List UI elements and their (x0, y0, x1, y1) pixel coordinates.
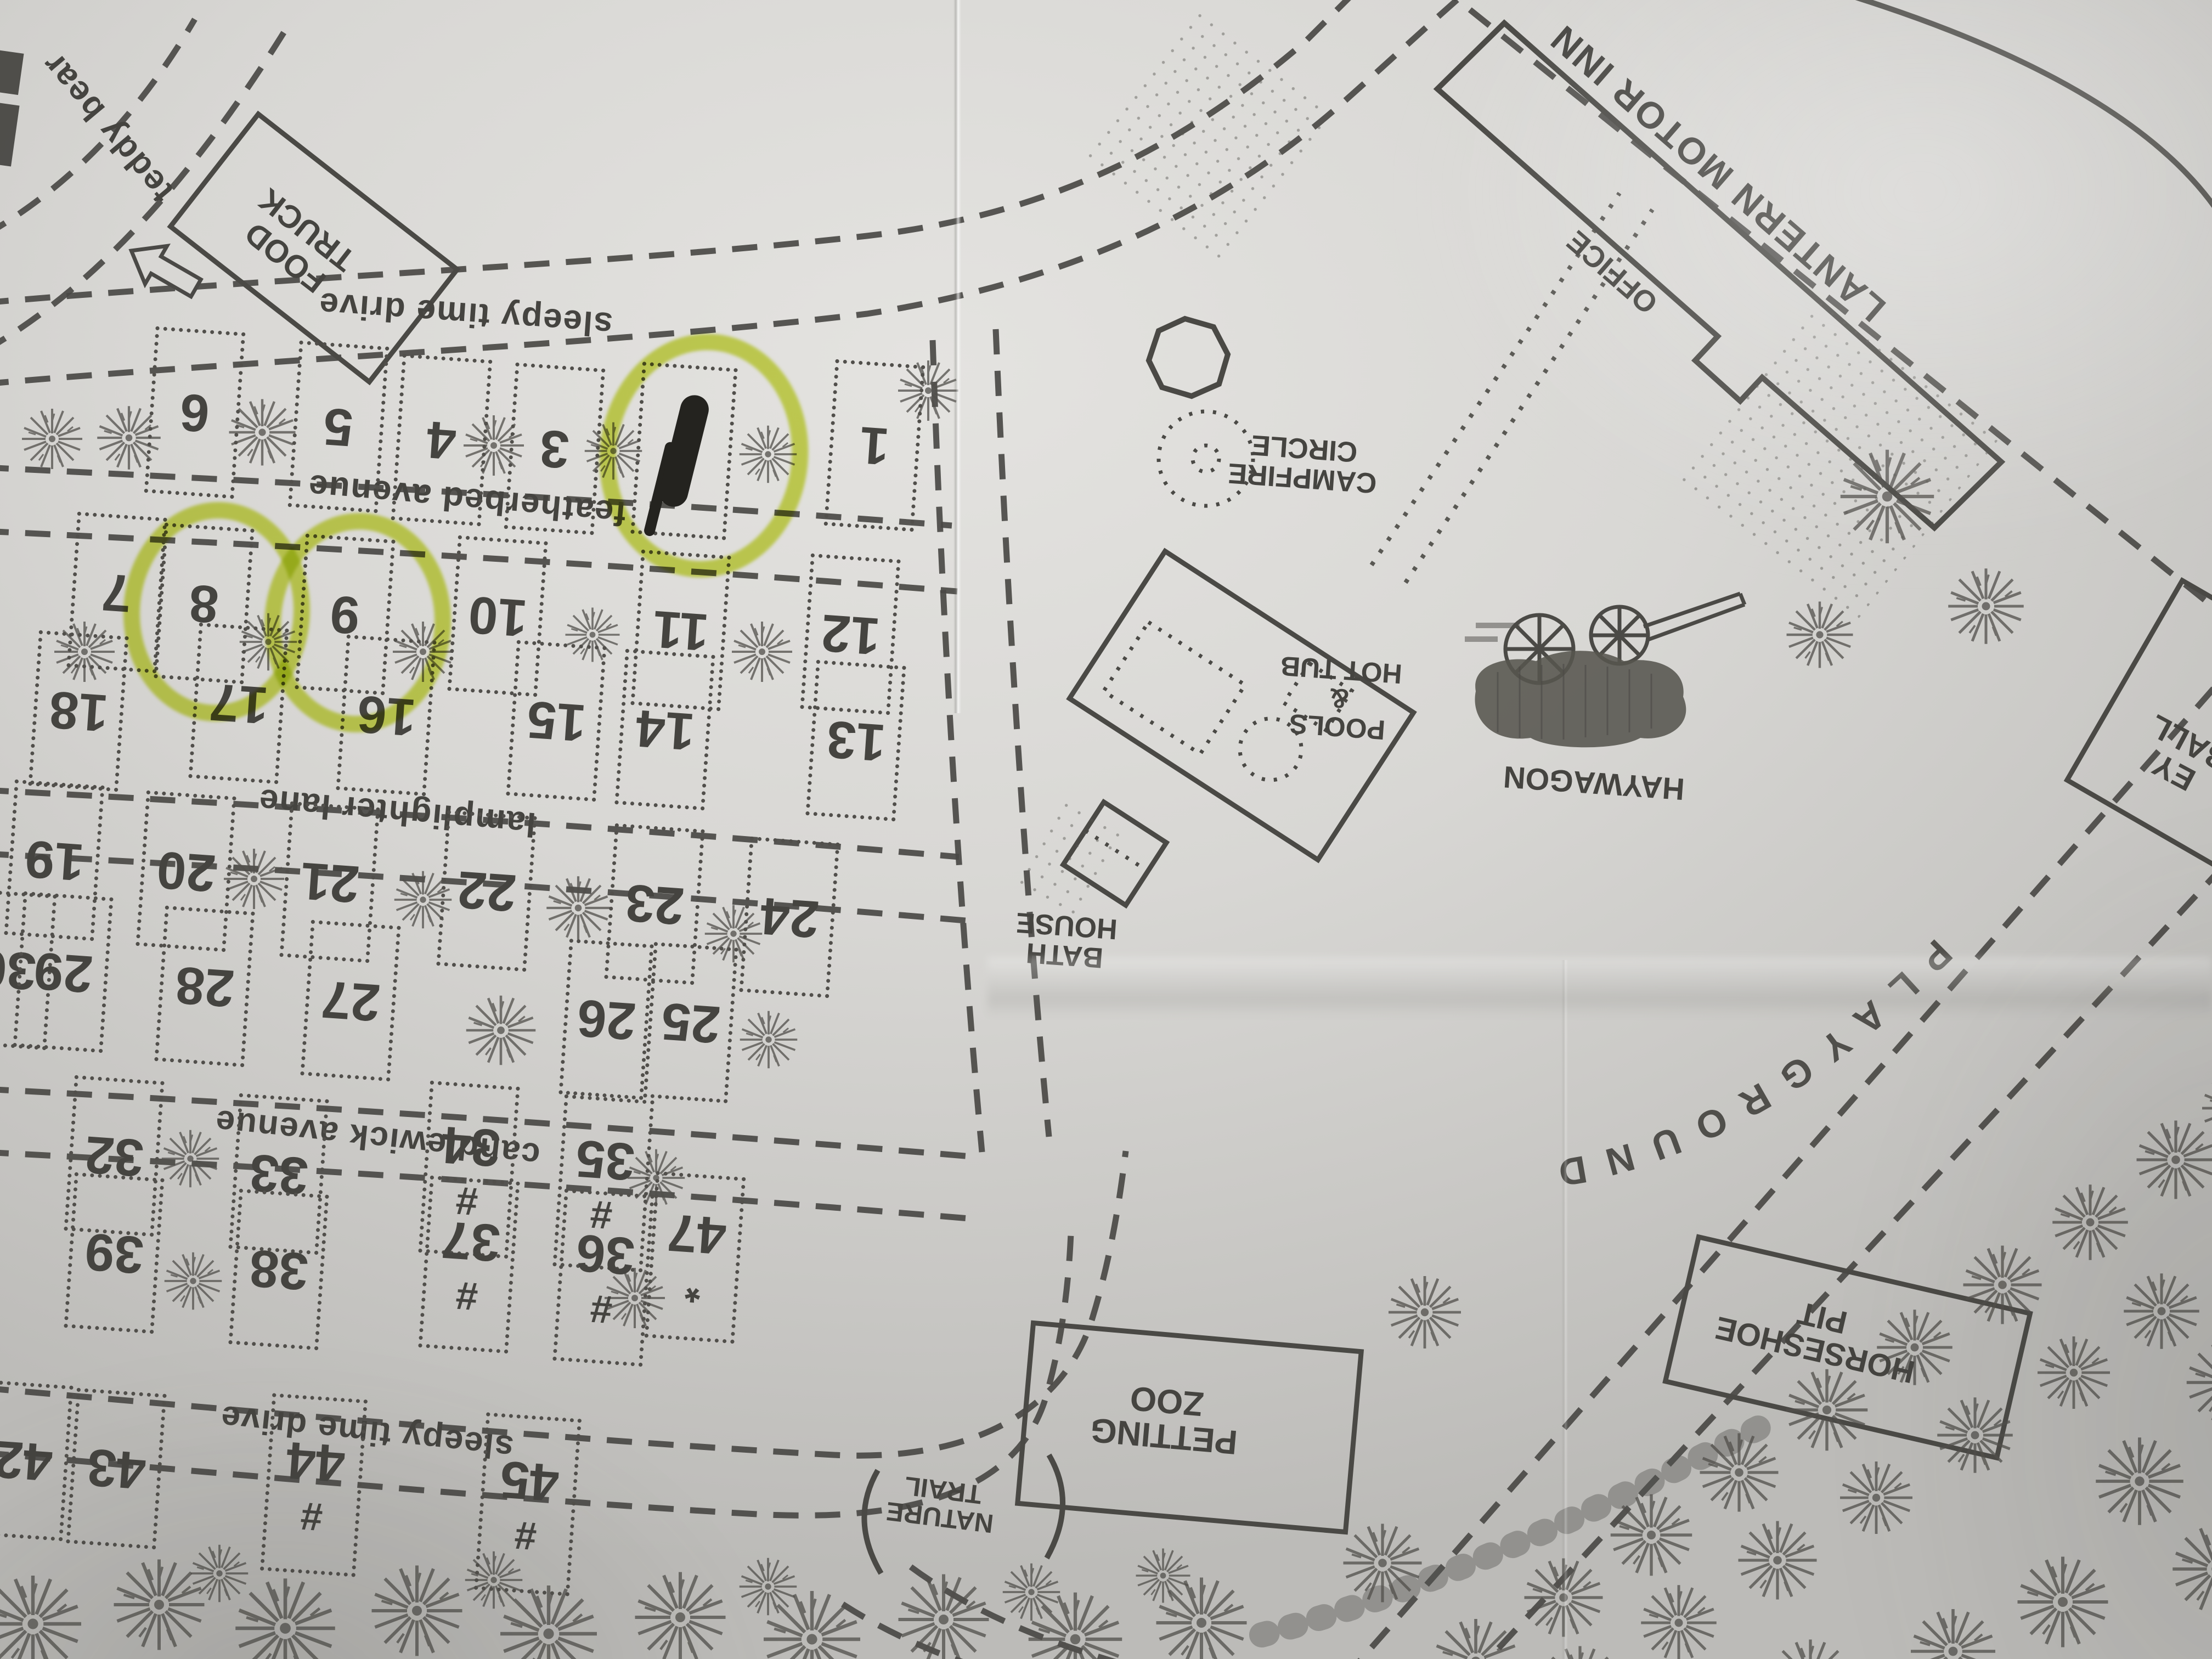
site-number-35: 35 (574, 1128, 636, 1192)
campsite-14: 14 (614, 649, 715, 811)
road-corner-top-right (1810, 0, 2212, 236)
site-number-29: 29 (32, 940, 94, 1004)
campsite-28: 28 (154, 906, 255, 1068)
campsite-4: 4 (391, 354, 493, 527)
campsite-26: 26 (558, 939, 653, 1100)
campsite-1: 1 (824, 359, 926, 532)
campsite-3: 3 (504, 363, 606, 535)
campfire-circle-inner (1193, 445, 1219, 472)
site-number-13: 13 (825, 708, 887, 772)
campfire-circle-label: CAMPFIRE CIRCLE (1227, 428, 1380, 498)
site-number-27: 27 (319, 968, 382, 1032)
site-number-1: 1 (858, 414, 891, 476)
svg-text:PLAYGROUND: PLAYGROUND (1536, 932, 1961, 1198)
campsite-6: 6 (144, 326, 246, 499)
hash-marker: # (513, 1513, 538, 1559)
site-number-3: 3 (538, 417, 572, 479)
site-number-28: 28 (173, 954, 236, 1018)
campsite-13: 13 (805, 660, 906, 822)
campsite-5: 5 (288, 341, 390, 513)
campground-map-photo: .road{fill:none;stroke:#4a4945;stroke-wi… (0, 0, 2212, 1659)
asterisk-marker: * (684, 1266, 702, 1312)
site-number-19: 19 (23, 828, 86, 892)
edge-cut-building-a (0, 49, 24, 95)
campsite-15: 15 (506, 640, 606, 802)
road-diagonal-2 (1470, 856, 2212, 1659)
haywagon-illustration (1465, 594, 1745, 747)
site-number-42: 42 (0, 1428, 54, 1492)
road-loop-right-1 (933, 340, 982, 1152)
site-number-6: 6 (178, 381, 212, 443)
site-number-37: 37 (439, 1209, 502, 1273)
nature-trail-arc-left (864, 1470, 881, 1573)
bath-line2: HOUSE (1015, 907, 1118, 944)
site-number-47: 47 (665, 1202, 728, 1266)
campsite-39: 39 (64, 1172, 164, 1334)
site-number-26: 26 (575, 987, 637, 1051)
campsite-47: 47* (645, 1171, 746, 1344)
nature-trail-label: NATURE TRAIL (885, 1469, 998, 1537)
campsite-18: 18 (28, 630, 128, 792)
site-number-43: 43 (85, 1436, 148, 1500)
campsite-22: 22 (436, 810, 537, 972)
campsite-27: 27 (300, 920, 400, 1082)
site-number-24: 24 (758, 885, 821, 949)
site-number-10: 10 (466, 584, 529, 648)
hash-marker: # (454, 1273, 479, 1319)
site-number-15: 15 (525, 689, 588, 753)
site-number-23: 23 (623, 872, 686, 936)
hash-marker: # (299, 1493, 324, 1540)
site-number-45: 45 (498, 1449, 561, 1513)
campsite-25: 25 (643, 942, 738, 1103)
campsite-45: 45# (474, 1412, 582, 1596)
site-number-44: 44 (284, 1430, 347, 1494)
road-diagonal-1 (1344, 667, 2212, 1659)
pools-hot-tub-label: POOLS & HOT TUB (1276, 651, 1403, 745)
site-number-34: 34 (439, 1114, 502, 1178)
campsite-42: 42 (0, 1380, 74, 1542)
site-number-39: 39 (83, 1221, 145, 1285)
hash-marker: # (589, 1286, 614, 1333)
site-number-14: 14 (634, 697, 696, 761)
site-number-36: 36 (574, 1222, 636, 1286)
campsite-24: 24 (739, 837, 839, 998)
playground-label: PLAYGROUND (1536, 932, 1961, 1198)
site-number-4: 4 (425, 409, 459, 471)
site-number-38: 38 (247, 1237, 310, 1301)
campsite-43: 43 (66, 1388, 166, 1550)
site-number-20: 20 (155, 839, 217, 903)
site-number-12: 12 (819, 602, 882, 666)
campsite-37: 37# (418, 1176, 520, 1354)
campsite-44: 44# (260, 1393, 368, 1577)
campsite-38: 38 (228, 1189, 329, 1351)
site-number-22: 22 (455, 859, 518, 923)
campsite-36: 36# (552, 1189, 654, 1367)
bath-house-label: BATH HOUSE (1013, 907, 1118, 974)
road-loop-right-2 (996, 329, 1049, 1137)
site-number-21: 21 (298, 850, 361, 914)
site-number-18: 18 (47, 679, 110, 743)
petting-zoo-label: PETTING ZOO (1089, 1376, 1242, 1460)
campfire-octagon (1149, 319, 1228, 396)
edge-cut-building-b (0, 102, 20, 166)
campsite-29: 29 (13, 891, 113, 1053)
site-number-25: 25 (659, 990, 722, 1054)
site-number-5: 5 (322, 396, 356, 458)
